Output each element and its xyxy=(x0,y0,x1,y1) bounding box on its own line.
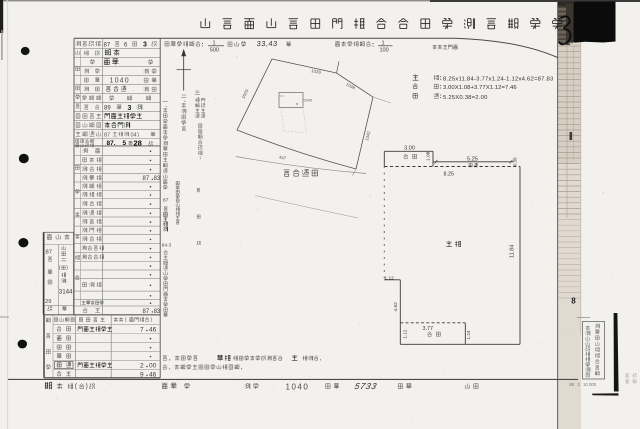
svg-text:8.25x11.84-3.77x1.24-1.12x4.62: 8.25x11.84-3.77x1.24-1.12x4.62=87.83 xyxy=(443,76,554,82)
svg-text:87: 87 xyxy=(104,42,111,48)
svg-text:0.38: 0.38 xyxy=(512,157,517,166)
svg-text:04: 04 xyxy=(131,132,137,138)
svg-text:3.77: 3.77 xyxy=(423,326,434,332)
svg-text:2: 2 xyxy=(140,363,144,370)
svg-text:29: 29 xyxy=(45,299,51,305)
svg-text:87: 87 xyxy=(143,176,150,182)
svg-text:3.00: 3.00 xyxy=(404,145,415,151)
svg-text:3144: 3144 xyxy=(59,289,73,296)
svg-text:100: 100 xyxy=(380,48,389,54)
svg-text:5.25: 5.25 xyxy=(467,156,478,162)
svg-text:1039: 1039 xyxy=(311,68,322,75)
svg-text:1.12: 1.12 xyxy=(385,276,395,282)
svg-text:28: 28 xyxy=(134,139,142,148)
svg-text:87: 87 xyxy=(46,249,52,255)
svg-text:5733: 5733 xyxy=(354,381,379,391)
svg-text:3: 3 xyxy=(128,105,132,112)
svg-text:83: 83 xyxy=(154,309,161,315)
svg-text:1040: 1040 xyxy=(110,78,130,85)
svg-text:33,43: 33,43 xyxy=(256,39,278,48)
svg-text:5946: 5946 xyxy=(304,99,312,103)
svg-text:1042: 1042 xyxy=(364,130,371,141)
svg-text:46: 46 xyxy=(149,371,157,378)
svg-text:00: 00 xyxy=(149,363,157,370)
svg-text:447: 447 xyxy=(279,155,287,161)
svg-text:87.: 87. xyxy=(107,140,116,147)
svg-text:10.000: 10.000 xyxy=(583,382,597,387)
svg-text:11.84: 11.84 xyxy=(510,245,516,258)
svg-text:46: 46 xyxy=(149,327,157,334)
svg-text:88: 88 xyxy=(569,382,574,387)
svg-text:1029: 1029 xyxy=(240,88,249,99)
svg-text:7: 7 xyxy=(140,327,144,334)
svg-text:87: 87 xyxy=(104,132,110,138)
svg-text:500: 500 xyxy=(210,48,219,54)
svg-text:1.24: 1.24 xyxy=(466,330,471,339)
svg-text:8: 8 xyxy=(571,296,576,305)
svg-text:5: 5 xyxy=(123,140,127,147)
svg-text:1.12: 1.12 xyxy=(402,329,407,338)
svg-text:3: 3 xyxy=(143,42,147,49)
svg-text:64-3: 64-3 xyxy=(162,243,172,248)
svg-text:4.62: 4.62 xyxy=(393,302,399,312)
svg-text:6: 6 xyxy=(124,42,128,48)
svg-text:1040: 1040 xyxy=(286,382,310,391)
svg-text:5.25X0.38=2.00: 5.25X0.38=2.00 xyxy=(443,95,488,101)
svg-text:1038: 1038 xyxy=(345,81,356,90)
svg-text:87: 87 xyxy=(143,309,150,315)
svg-text:3.00X1.08+3.77X1.12=7.46: 3.00X1.08+3.77X1.12=7.46 xyxy=(443,85,517,91)
svg-text:83: 83 xyxy=(154,176,161,182)
svg-text:87: 87 xyxy=(163,198,169,204)
svg-text:9: 9 xyxy=(140,371,144,378)
svg-text:8.25: 8.25 xyxy=(444,171,455,177)
svg-text:89: 89 xyxy=(104,105,111,111)
svg-text:1.08: 1.08 xyxy=(426,151,432,161)
